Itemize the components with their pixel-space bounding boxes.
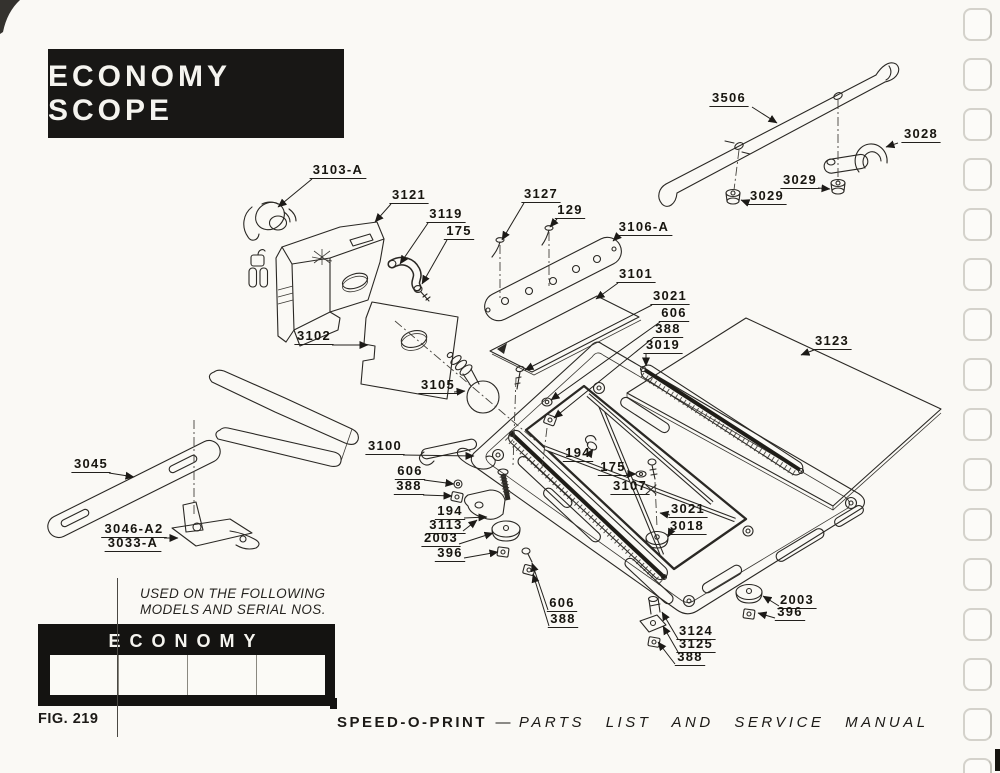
leader-line bbox=[758, 613, 775, 618]
leader-line bbox=[741, 200, 749, 203]
leader-line bbox=[375, 204, 391, 222]
binding-hole bbox=[963, 658, 992, 691]
part-label-388: 388 bbox=[677, 649, 703, 664]
serial-number-cell bbox=[257, 655, 325, 695]
part-label-3121: 3121 bbox=[392, 187, 426, 202]
part-label-3119: 3119 bbox=[429, 206, 462, 221]
part-3127-129-screws bbox=[492, 226, 553, 257]
part-label-175: 175 bbox=[600, 459, 626, 474]
leader-line bbox=[550, 219, 557, 227]
part-tsquare-head bbox=[209, 370, 358, 466]
part-label-3123: 3123 bbox=[815, 333, 849, 348]
binding-hole bbox=[963, 208, 992, 241]
part-label-3102: 3102 bbox=[297, 328, 331, 343]
part-3101-plate bbox=[490, 296, 641, 375]
binding-hole bbox=[963, 308, 992, 341]
leader-line bbox=[886, 143, 898, 147]
part-label-3107: 3107 bbox=[613, 478, 647, 493]
part-3046A2-3033A-bracket bbox=[172, 502, 259, 549]
part-label-3046-A2: 3046-A2 bbox=[105, 521, 164, 536]
leader-line bbox=[660, 513, 670, 515]
print-mark bbox=[330, 698, 337, 709]
part-label-194: 194 bbox=[565, 445, 591, 460]
leader-line bbox=[532, 563, 548, 610]
part-3119-handle bbox=[387, 259, 417, 287]
page-footer: SPEED-O-PRINT — PARTS LIST AND SERVICE M… bbox=[337, 714, 957, 732]
serial-number-cell bbox=[119, 655, 188, 695]
cord-plug bbox=[249, 250, 268, 287]
used-on-note: USED ON THE FOLLOWING MODELS AND SERIAL … bbox=[140, 586, 340, 618]
part-label-3029: 3029 bbox=[750, 188, 784, 203]
binding-hole bbox=[963, 408, 992, 441]
part-label-606: 606 bbox=[549, 595, 575, 610]
leader-line bbox=[596, 283, 618, 299]
leader-line bbox=[502, 203, 524, 240]
footer-separator: — bbox=[491, 714, 514, 731]
binding-hole bbox=[963, 458, 992, 491]
binding-hole bbox=[963, 558, 992, 591]
leader-line bbox=[400, 223, 428, 264]
part-3103A-socket bbox=[244, 197, 296, 240]
binding-hole bbox=[963, 358, 992, 391]
part-label-606: 606 bbox=[397, 463, 423, 478]
leader-line bbox=[801, 350, 814, 355]
corner-pads bbox=[493, 383, 857, 607]
part-label-3105: 3105 bbox=[421, 377, 455, 392]
binding-hole bbox=[963, 108, 992, 141]
part-label-3101: 3101 bbox=[619, 266, 653, 281]
leader-line bbox=[818, 188, 830, 189]
part-label-388: 388 bbox=[396, 478, 422, 493]
part-label-3021: 3021 bbox=[671, 501, 705, 516]
binding-hole bbox=[963, 758, 992, 773]
binding-hole bbox=[963, 508, 992, 541]
leader-line bbox=[658, 642, 675, 664]
part-label-3018: 3018 bbox=[670, 518, 704, 533]
part-label-3045: 3045 bbox=[74, 456, 108, 471]
models-table-header: ECONOMY bbox=[38, 624, 335, 652]
page-corner-curl bbox=[0, 0, 20, 34]
left-rail-clip bbox=[419, 438, 495, 469]
models-table-row bbox=[50, 655, 325, 695]
leader-line bbox=[464, 552, 498, 558]
part-label-3021: 3021 bbox=[653, 288, 687, 303]
leader-line bbox=[533, 574, 549, 626]
page-title: ECONOMY SCOPE bbox=[48, 60, 344, 128]
leader-line bbox=[752, 107, 777, 123]
part-labels: 35063028302930293103-A312131191753127129… bbox=[71, 90, 940, 666]
leader-line bbox=[422, 240, 447, 284]
pivot-assembly bbox=[465, 469, 521, 557]
part-label-396: 396 bbox=[777, 604, 803, 619]
leader-line bbox=[423, 495, 452, 496]
leader-line bbox=[663, 626, 678, 652]
part-label-3106-A: 3106-A bbox=[619, 219, 669, 234]
part-label-3019: 3019 bbox=[646, 337, 680, 352]
leader-line bbox=[459, 533, 493, 544]
binding-hole bbox=[963, 158, 992, 191]
part-label-2003: 2003 bbox=[424, 530, 458, 545]
used-on-line1: USED ON THE FOLLOWING bbox=[140, 586, 340, 602]
binding-hole bbox=[963, 608, 992, 641]
part-label-3033-A: 3033-A bbox=[108, 535, 158, 550]
part-label-606: 606 bbox=[661, 305, 687, 320]
part-3106A-plate bbox=[480, 232, 626, 325]
serial-number-cell bbox=[50, 655, 119, 695]
part-3028-clamp bbox=[823, 144, 887, 174]
figure-caption: FIG. 219 bbox=[38, 711, 98, 727]
leader-line bbox=[463, 520, 477, 531]
footer-title: PARTS LIST AND SERVICE MANUAL bbox=[519, 714, 929, 731]
leader-line bbox=[278, 179, 312, 207]
serial-number-cell bbox=[188, 655, 257, 695]
part-label-175: 175 bbox=[446, 223, 472, 238]
column-rule bbox=[117, 578, 118, 737]
binding-hole bbox=[963, 58, 992, 91]
manual-page: 35063028302930293103-A312131191753127129… bbox=[0, 0, 1000, 773]
binding-hole bbox=[963, 8, 992, 41]
leader-line bbox=[109, 473, 134, 477]
binding-hole bbox=[963, 708, 992, 741]
part-label-388: 388 bbox=[655, 321, 681, 336]
part-label-3103-A: 3103-A bbox=[313, 162, 363, 177]
leader-line bbox=[403, 455, 474, 456]
part-label-3029: 3029 bbox=[783, 172, 817, 187]
part-label-3028: 3028 bbox=[904, 126, 938, 141]
title-block: ECONOMY SCOPE bbox=[48, 49, 344, 138]
part-label-3127: 3127 bbox=[524, 186, 558, 201]
part-label-129: 129 bbox=[557, 202, 583, 217]
binding-hole bbox=[963, 258, 992, 291]
page-edge-mark bbox=[995, 749, 1000, 771]
footer-brand: SPEED-O-PRINT bbox=[337, 714, 487, 731]
part-label-194: 194 bbox=[437, 503, 463, 518]
part-label-3100: 3100 bbox=[368, 438, 402, 453]
leader-line bbox=[454, 391, 465, 392]
leader-line bbox=[424, 480, 454, 484]
part-3506-bar bbox=[659, 63, 899, 207]
part-label-3506: 3506 bbox=[712, 90, 746, 105]
part-label-396: 396 bbox=[437, 545, 463, 560]
used-on-line2: MODELS AND SERIAL NOS. bbox=[140, 602, 340, 618]
part-label-388: 388 bbox=[550, 611, 576, 626]
models-serial-table: ECONOMY bbox=[38, 624, 335, 706]
